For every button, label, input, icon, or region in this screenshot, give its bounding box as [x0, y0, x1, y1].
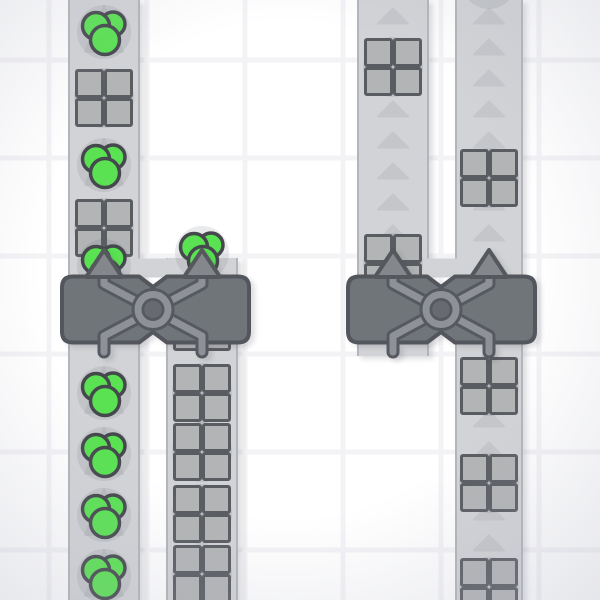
shape-item-squares [172, 484, 232, 544]
shape-item-circles [77, 427, 131, 481]
shape-item-squares [172, 422, 232, 482]
shape-item-squares [74, 68, 134, 128]
shape-item-circles [77, 138, 131, 192]
game-viewport[interactable] [0, 0, 600, 600]
balancer-ring-hole [145, 301, 162, 318]
shape-item-circles [77, 488, 131, 542]
shape-item-circles [77, 366, 131, 420]
shape-item-squares [459, 453, 519, 513]
shape-item-squares [172, 363, 232, 423]
shape-item-squares [459, 557, 519, 600]
shape-item-circles [77, 5, 131, 59]
shape-item-squares [459, 356, 519, 416]
shape-item-squares [459, 148, 519, 208]
game-canvas[interactable] [0, 0, 600, 600]
shape-item-squares [172, 544, 232, 600]
balancer-ring-hole [433, 301, 450, 318]
shape-item-squares [363, 37, 423, 97]
